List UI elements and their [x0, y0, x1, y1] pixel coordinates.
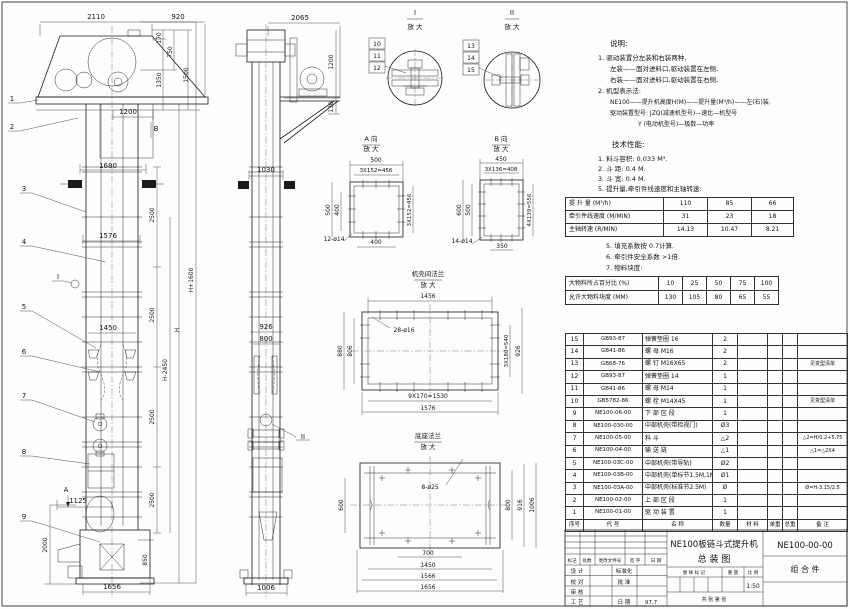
annotation-text: 9	[22, 513, 26, 521]
annotation-text: A	[64, 486, 69, 494]
annotation-text: 14	[467, 55, 475, 62]
bom-cell	[738, 334, 768, 346]
annotation-text: 1500	[183, 67, 190, 82]
bom-row: 7NE100-05-00料 斗△2△2=H/0.2+5.75	[566, 433, 848, 445]
bom-row: 15GB93-87弹簧垫圈 162	[566, 334, 848, 346]
annotation-text: 1006	[257, 584, 275, 592]
bom-header-cell: 名 称	[643, 519, 713, 531]
annotation-text: 28-ø16	[393, 327, 414, 334]
bom-cell	[768, 383, 783, 395]
sheet-count-label: 共 张 第 张	[702, 596, 727, 603]
annotation-text: 2500	[149, 307, 156, 322]
row-value: 23	[708, 211, 752, 224]
bom-cell: 中部机壳(单标节1.5M,1M)	[643, 470, 713, 482]
bom-cell: 料 斗	[643, 433, 713, 445]
bom-row: 10GB5782-86螺 栓 M14X451见变型清单	[566, 395, 848, 407]
annotation-text: 1030	[257, 166, 275, 174]
lump-size-table: 大物料所占百分比 (%)10255075100允许大物料块度 (MM)13010…	[565, 276, 779, 305]
bom-cell	[768, 470, 783, 482]
annotation-text: Y (电动机型号)—极数—功率	[637, 120, 714, 128]
annotation-text: 4X139=556	[527, 193, 533, 226]
bom-cell: NE100-02-00	[584, 495, 643, 507]
annotation-text: 3X152=456	[407, 193, 413, 226]
annotation-text: 14-ø14	[451, 238, 472, 245]
bom-cell: 见变型清单	[798, 395, 848, 407]
annotation-text: 日 期	[618, 599, 631, 606]
bom-row: 2NE100-02-00上 部 区 段1	[566, 495, 848, 507]
bom-cell: 1	[713, 395, 738, 407]
bom-cell: GB5782-86	[584, 395, 643, 407]
row-value: 66	[752, 198, 794, 211]
annotation-text: 标准化	[616, 567, 633, 575]
row-value: 10.47	[708, 224, 752, 237]
row-value: 85	[708, 198, 752, 211]
annotation-text: 底座法兰	[415, 431, 442, 440]
row-value: 65	[731, 291, 755, 305]
bom-cell: 10	[566, 395, 584, 407]
bom-cell: 中部机壳(标准节2.5M)	[643, 482, 713, 494]
bom-cell: GB93-87	[584, 334, 643, 346]
annotation-text: 600	[456, 204, 463, 216]
bom-cell: 2	[566, 495, 584, 507]
annotation-text: B 向	[494, 134, 507, 143]
bom-row: 12GB93-87弹簧垫圈 141	[566, 371, 848, 383]
annotation-text: 8	[22, 448, 26, 456]
bom-row: 4NE100-03B-00中部机壳(单标节1.5M,1M)Ø1	[566, 470, 848, 482]
annotation-text: 500	[465, 204, 472, 216]
annotation-text: 500	[370, 157, 382, 164]
annotation-text: 806	[347, 345, 354, 357]
bom-cell	[768, 482, 783, 494]
annotation-text: 1. 料斗容积: 0.033 M³.	[598, 154, 667, 163]
bom-cell: 2	[713, 358, 738, 370]
row-value: 100	[755, 277, 779, 291]
bom-cell: 驱 动 装 置	[643, 507, 713, 519]
annotation-text: 右装——面对进料口,驱动装置在右侧,	[610, 75, 718, 84]
bom-cell: 1	[713, 383, 738, 395]
bom-cell	[783, 371, 798, 383]
bom-row: 8NE100-030-00中部机壳(带检视门)Ø3	[566, 420, 848, 432]
annotation-text: 1200	[119, 108, 137, 116]
bom-cell	[768, 358, 783, 370]
bom-cell: △2=H/0.2+5.75	[798, 433, 848, 445]
annotation-text: 重 量	[728, 569, 739, 576]
bom-cell	[768, 408, 783, 420]
bom-cell: 2	[713, 346, 738, 358]
annotation-text: 放 大	[420, 280, 436, 289]
bom-cell	[783, 346, 798, 358]
annotation-text: 校 对	[571, 578, 584, 586]
bom-cell	[783, 334, 798, 346]
bom-cell	[783, 420, 798, 432]
annotation-text: B	[154, 125, 159, 133]
bom-row: 3NE100-03A-00中部机壳(标准节2.5M)ØØ=H-3.15/2.5	[566, 482, 848, 494]
annotation-text: 12-ø14	[323, 236, 344, 243]
annotation-text: 5	[22, 303, 26, 311]
detail-ii	[479, 19, 540, 108]
row-label: 主轴转速 (R/MIN)	[566, 224, 664, 237]
bom-cell: 2	[713, 334, 738, 346]
annotation-text: 图 样 标 记	[683, 569, 706, 576]
annotation-text: 左装——面对进料口,驱动装置在左侧,	[610, 64, 718, 73]
bom-header-row: 序号代 号名 称数量材 料单重总重备 注	[566, 519, 848, 531]
bom-cell	[738, 507, 768, 519]
bom-header-cell: 数量	[713, 519, 738, 531]
bom-cell	[798, 346, 848, 358]
title-block: NE100板链斗式提升机 总 装 图 NE100-00-00 组 合 件 1:5…	[565, 530, 847, 606]
row-value: 75	[731, 277, 755, 291]
bom-cell	[738, 346, 768, 358]
annotation-text: 说明:	[610, 38, 628, 48]
annotation-text: H	[174, 328, 181, 333]
bom-cell	[768, 457, 783, 469]
bom-cell	[768, 433, 783, 445]
bom-cell	[768, 445, 783, 457]
row-value: 130	[659, 291, 683, 305]
annotation-text: 400	[334, 204, 341, 216]
annotation-text: 驱动装置型号: JZQ(减速机型号)—速比—机型号	[610, 109, 737, 117]
bom-cell	[768, 371, 783, 383]
bom-cell: NE100-03C-00	[584, 457, 643, 469]
annotation-text: 1. 驱动装置分左装和右装两种,	[598, 53, 686, 62]
row-value: 10	[659, 277, 683, 291]
detail-i	[385, 19, 444, 107]
annotation-text: 1450	[420, 562, 435, 569]
bom-cell	[738, 495, 768, 507]
bom-cell: Ø2	[713, 457, 738, 469]
bom-cell	[798, 470, 848, 482]
annotation-text: 3X180=540	[504, 334, 510, 367]
annotation-text: 9X170=1530	[408, 393, 448, 400]
annotation-text: 放 大	[493, 144, 509, 153]
bom-cell: 螺 母 M14	[643, 383, 713, 395]
annotation-text: 1656	[103, 583, 121, 591]
bom-cell	[798, 420, 848, 432]
bom-header-cell: 单重	[768, 519, 783, 531]
annotation-text: 15	[467, 67, 475, 74]
annotation-text: 750	[167, 46, 174, 58]
annotation-text: 设 计	[571, 567, 584, 575]
bom-cell: Ø	[713, 482, 738, 494]
annotation-text: 2500	[149, 207, 156, 222]
scale-value: 1:50	[746, 583, 760, 590]
annotation-text: 放 大	[363, 144, 379, 153]
annotation-text: 916	[517, 499, 524, 511]
annotation-text: 2500	[149, 409, 156, 424]
side-view	[236, 23, 340, 598]
annotation-text: 10	[373, 41, 381, 48]
bom-cell: GB68-76	[584, 358, 643, 370]
bom-cell: 6	[566, 445, 584, 457]
bom-cell: 弹簧垫圈 14	[643, 371, 713, 383]
annotation-text: 1125	[69, 497, 87, 505]
annotation-text: 1	[10, 95, 14, 103]
table-row: 大物料所占百分比 (%)10255075100	[566, 277, 779, 291]
bom-cell: △1	[713, 445, 738, 457]
bom-cell	[798, 383, 848, 395]
row-label: 提 升 量 (M³/h)	[566, 198, 664, 211]
annotation-text: 放 大	[407, 22, 423, 31]
bom-row: 9NE100-06-00下 部 区 段1	[566, 408, 848, 420]
annotation-text: 更改文件号	[599, 557, 622, 564]
bom-cell: NE100-01-00	[584, 507, 643, 519]
drawing-title-line1: NE100板链斗式提升机	[670, 539, 758, 550]
drawing-number: NE100-00-00	[777, 541, 833, 551]
row-label: 大物料所占百分比 (%)	[566, 277, 659, 291]
annotation-text: 2	[10, 123, 14, 131]
bom-cell	[738, 433, 768, 445]
drawing-title-line2: 总 装 图	[698, 553, 731, 565]
row-value: 110	[664, 198, 708, 211]
bom-cell: 中部机壳(带导轨)	[643, 457, 713, 469]
bom-header-cell: 备 注	[798, 519, 848, 531]
annotation-text: I	[57, 273, 59, 281]
row-label: 牵引件线速度 (M/MIN)	[566, 211, 664, 224]
bom-cell: 9	[566, 408, 584, 420]
annotation-text: 1006	[529, 497, 536, 512]
bom-cell: NE100-05-00	[584, 433, 643, 445]
annotation-text: 6. 牵引件安全系数 >1倍.	[606, 252, 680, 261]
bom-cell: 15	[566, 334, 584, 346]
bom-cell: NE100-04-00	[584, 445, 643, 457]
bom-header-cell: 序号	[566, 519, 584, 531]
annotation-text: 2. 斗 距: 0.4 M.	[598, 165, 646, 173]
bom-cell: 上 部 区 段	[643, 495, 713, 507]
annotation-text: 审 核	[571, 588, 584, 596]
annotation-text: 签 字	[630, 557, 641, 564]
bom-cell: 4	[566, 470, 584, 482]
bom-header-cell: 代 号	[584, 519, 643, 531]
annotation-text: 5. 提升量,牵引件线速度和主轴转速:	[598, 184, 702, 193]
annotation-text: 8-ø25	[421, 484, 438, 491]
annotation-text: 处数	[583, 557, 592, 564]
annotation-text: 880	[337, 345, 344, 357]
bom-cell	[768, 507, 783, 519]
bom-cell: 8	[566, 420, 584, 432]
annotation-text: 1450	[99, 324, 117, 332]
annotation-text: 1566	[420, 573, 435, 580]
bom-cell: 14	[566, 346, 584, 358]
annotation-text: II	[510, 9, 514, 17]
row-value: 50	[707, 277, 731, 291]
date-value: 97.7	[645, 600, 658, 606]
annotation-text: 3X136=408	[485, 167, 518, 173]
annotation-text: 1350	[156, 72, 163, 87]
bom-cell: 13	[566, 358, 584, 370]
bom-cell	[798, 408, 848, 420]
row-value: 8.21	[752, 224, 794, 237]
bom-cell: 中部机壳(带检视门)	[643, 420, 713, 432]
bom-cell: 1	[713, 371, 738, 383]
bom-cell	[738, 383, 768, 395]
bom-cell	[768, 395, 783, 407]
annotation-text: 机壳间法兰	[412, 269, 445, 278]
bom-cell	[798, 457, 848, 469]
annotation-text: 7. 物料块度:	[606, 263, 642, 272]
bom-cell: 螺 栓 M14X45	[643, 395, 713, 407]
bom-cell	[738, 470, 768, 482]
bom-cell: GB41-86	[584, 346, 643, 358]
annotation-text: 批 准	[618, 578, 631, 586]
row-value: 14.13	[664, 224, 708, 237]
annotation-text: 3. 斗 宽: 0.4 M.	[598, 174, 646, 183]
annotation-text: 450	[495, 156, 507, 163]
annotation-text: 放 大	[504, 22, 520, 31]
bom-cell: NE100-06-00	[584, 408, 643, 420]
bom-cell	[738, 395, 768, 407]
bom-cell	[783, 457, 798, 469]
annotation-text: 600	[338, 499, 345, 511]
annotation-text: 1576	[420, 405, 435, 412]
bom-cell	[783, 383, 798, 395]
annotation-text: 1200	[328, 54, 335, 69]
bom-cell: △2	[713, 433, 738, 445]
bom-cell	[738, 445, 768, 457]
annotation-text: 7	[22, 392, 26, 400]
bom-cell	[768, 346, 783, 358]
bom-cell	[783, 433, 798, 445]
bom-cell	[783, 358, 798, 370]
bom-cell: 12	[566, 371, 584, 383]
annotation-text: 2. 机型表示法:	[598, 86, 641, 95]
bom-cell: Ø1	[713, 470, 738, 482]
annotation-text: 400	[370, 239, 382, 246]
bom-cell: 1	[713, 495, 738, 507]
row-value: 25	[683, 277, 707, 291]
bom-cell: 1	[713, 507, 738, 519]
annotation-text: 1456	[420, 293, 435, 300]
annotation-text: 标记	[568, 557, 577, 564]
bom-cell	[798, 507, 848, 519]
bom-cell	[738, 408, 768, 420]
annotation-text: 700	[422, 550, 434, 557]
bom-header-cell: 材 料	[738, 519, 768, 531]
table-row: 主轴转速 (R/MIN)14.1310.478.21	[566, 224, 794, 237]
annotation-text: NE100——提升机高度H(M)——提升量(M³/h)——左(右)装.	[610, 98, 771, 106]
bom-cell	[738, 482, 768, 494]
bom-row: 11GB41-86螺 母 M141	[566, 383, 848, 395]
bom-cell	[783, 495, 798, 507]
annotation-text: 工 艺	[571, 599, 584, 606]
front-view	[8, 22, 208, 598]
row-value: 31	[664, 211, 708, 224]
annotation-text: 2110	[87, 13, 105, 21]
annotation-text: 11	[373, 53, 381, 60]
bom-row: 6NE100-04-00输 送 链△1△1=△2X4	[566, 445, 848, 457]
bom-cell	[783, 395, 798, 407]
bom-cell: GB41-86	[584, 383, 643, 395]
bom-table: 15GB93-87弹簧垫圈 16214GB41-86螺 母 M16213GB68…	[565, 333, 848, 532]
annotation-text: 2065	[291, 14, 309, 22]
bom-cell: 3	[566, 482, 584, 494]
bom-cell	[783, 408, 798, 420]
table-row: 提 升 量 (M³/h)1108566	[566, 198, 794, 211]
bom-cell: 螺 钉 M16X65	[643, 358, 713, 370]
annotation-text: 12	[373, 65, 381, 72]
annotation-text: 926	[259, 323, 273, 331]
bom-cell	[783, 445, 798, 457]
annotation-text: 2500	[149, 492, 156, 507]
bom-cell: Ø3	[713, 420, 738, 432]
row-value: 18	[752, 211, 794, 224]
row-value: 105	[683, 291, 707, 305]
annotation-text: 2000	[42, 537, 49, 552]
annotation-text: H-2450	[162, 359, 169, 381]
bom-row: 5NE100-03C-00中部机壳(带导轨)Ø2	[566, 457, 848, 469]
bom-cell	[798, 371, 848, 383]
annotation-text: 350	[496, 243, 508, 250]
bom-row: 14GB41-86螺 母 M162	[566, 346, 848, 358]
bom-cell: 下 部 区 段	[643, 408, 713, 420]
bom-cell	[738, 371, 768, 383]
annotation-text: 170	[156, 32, 163, 44]
annotation-text: 6	[22, 348, 27, 356]
bom-cell	[783, 507, 798, 519]
bom-header-cell: 总重	[783, 519, 798, 531]
bom-cell	[768, 495, 783, 507]
annotation-text: 1680	[99, 162, 117, 170]
bom-cell: 1	[713, 408, 738, 420]
table-row: 牵引件线速度 (M/MIN)312318	[566, 211, 794, 224]
annotation-text: 日 期	[651, 558, 662, 564]
annotation-text: 13	[467, 43, 475, 50]
bom-cell: 7	[566, 433, 584, 445]
annotation-text: 4	[22, 238, 27, 246]
bom-cell: △1=△2X4	[798, 445, 848, 457]
bom-cell: 弹簧垫圈 16	[643, 334, 713, 346]
bom-cell: 见变型清单	[798, 358, 848, 370]
table-row: 允许大物料块度 (MM)130105806555	[566, 291, 779, 305]
annotation-text: 800	[259, 335, 272, 343]
bom-cell	[738, 457, 768, 469]
bom-cell: 螺 母 M16	[643, 346, 713, 358]
annotation-text: II	[301, 433, 305, 441]
annotation-text: 800	[505, 499, 512, 511]
bom-cell: Ø=H-3.15/2.5	[798, 482, 848, 494]
speed-capacity-table: 提 升 量 (M³/h)1108566牵引件线速度 (M/MIN)312318主…	[565, 197, 794, 237]
bom-cell	[798, 334, 848, 346]
annotation-text: H+1600	[188, 267, 195, 292]
annotation-text: 130	[328, 101, 335, 113]
bom-cell: NE100-03A-00	[584, 482, 643, 494]
row-value: 55	[755, 291, 779, 305]
bom-cell: 输 送 链	[643, 445, 713, 457]
annotation-text: 1576	[99, 232, 117, 240]
bom-cell: NE100-030-00	[584, 420, 643, 432]
bom-cell: NE100-03B-00	[584, 470, 643, 482]
annotation-text: A 向	[364, 134, 377, 143]
row-label: 允许大物料块度 (MM)	[566, 291, 659, 305]
bom-cell	[768, 334, 783, 346]
row-value: 80	[707, 291, 731, 305]
bom-cell: 5	[566, 457, 584, 469]
bom-cell: GB93-87	[584, 371, 643, 383]
annotation-text: I	[414, 9, 416, 17]
drawing-sheet: 说明:1. 驱动装置分左装和右装两种,左装——面对进料口,驱动装置在左侧,右装—…	[0, 0, 850, 609]
bom-cell	[768, 420, 783, 432]
bom-cell: 1	[566, 507, 584, 519]
annotation-text: 3	[22, 185, 26, 193]
annotation-text: 技术性能:	[612, 139, 645, 149]
bom-cell: 11	[566, 383, 584, 395]
callout-leaders	[8, 100, 106, 542]
base-flange-detail	[345, 442, 536, 593]
bom-cell	[738, 358, 768, 370]
bom-cell	[783, 482, 798, 494]
bom-row: 1NE100-01-00驱 动 装 置1	[566, 507, 848, 519]
annotation-text: 926	[515, 345, 522, 357]
bom-cell	[783, 470, 798, 482]
